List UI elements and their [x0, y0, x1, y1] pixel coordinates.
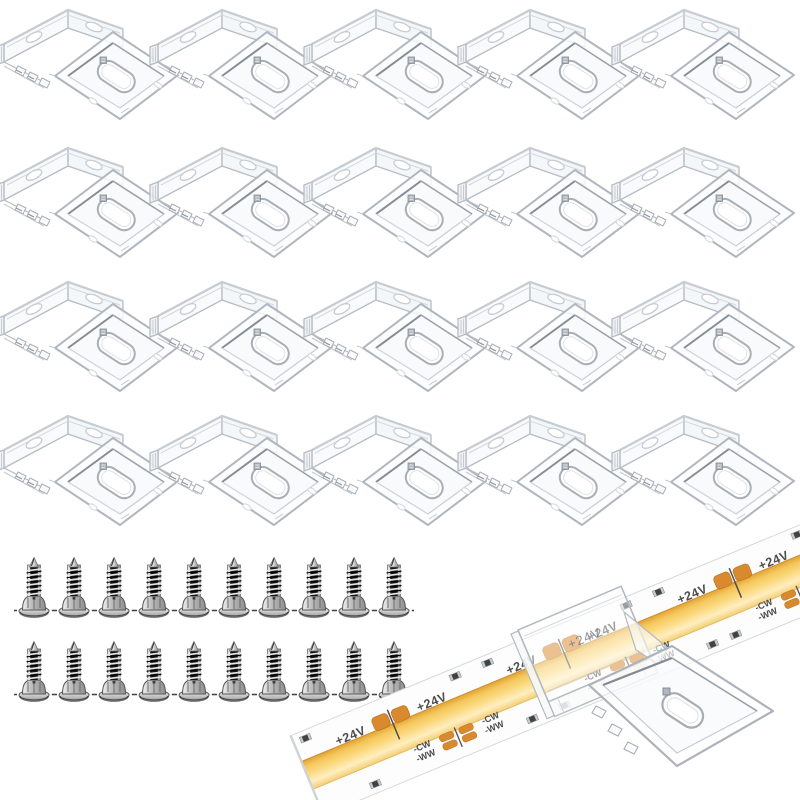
- screw: [14, 642, 54, 702]
- screw: [54, 558, 94, 618]
- demo-clip-marker-square: [663, 688, 670, 695]
- mounting-clip: [612, 148, 794, 257]
- screw: [214, 642, 254, 702]
- screw: [334, 642, 374, 702]
- product-photo: +24V+24V+24V+24V+24V+24V-CW-WW-CW-WW-CW-…: [0, 0, 800, 800]
- screw: [214, 558, 254, 618]
- screw: [54, 642, 94, 702]
- clip-grid: [0, 10, 794, 525]
- screw: [174, 642, 214, 702]
- screw: [94, 642, 134, 702]
- mounting-clip: [612, 10, 794, 119]
- screw: [94, 558, 134, 618]
- screw: [134, 558, 174, 618]
- screw: [254, 642, 294, 702]
- product-photo-canvas: +24V+24V+24V+24V+24V+24V-CW-WW-CW-WW-CW-…: [0, 0, 800, 800]
- screw: [14, 558, 54, 618]
- screw: [174, 558, 214, 618]
- screw-set: [14, 558, 414, 702]
- screw: [254, 558, 294, 618]
- screw: [334, 558, 374, 618]
- screw: [294, 642, 334, 702]
- screw: [134, 642, 174, 702]
- screw: [294, 558, 334, 618]
- mounting-clip: [612, 282, 794, 391]
- mounting-clip: [612, 416, 794, 525]
- screw: [374, 558, 414, 618]
